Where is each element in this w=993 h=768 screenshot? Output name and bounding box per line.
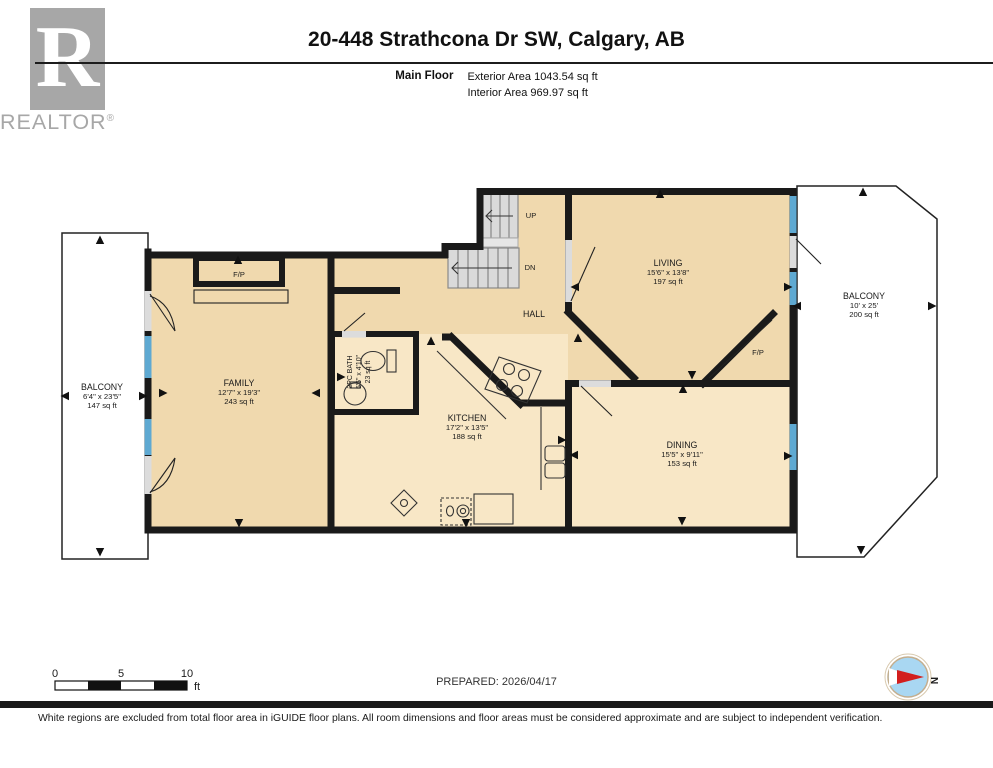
svg-text:15'6" x 13'8": 15'6" x 13'8" (647, 268, 689, 277)
prepared-date: PREPARED: 2026/04/17 (0, 676, 993, 688)
window (790, 196, 797, 233)
compass-icon: N (872, 648, 956, 704)
svg-text:153 sq ft: 153 sq ft (667, 459, 697, 468)
compass-north-label: N (928, 677, 939, 684)
living-fireplace-label: F/P (752, 348, 764, 357)
svg-text:10' x 25': 10' x 25' (850, 301, 879, 310)
footer-divider-bar (0, 701, 993, 708)
kitchen-label: KITCHEN (448, 413, 487, 423)
stair-landing (482, 238, 518, 247)
svg-text:17'2" x 13'5": 17'2" x 13'5" (446, 423, 488, 432)
disclaimer-text: White regions are excluded from total fl… (38, 713, 979, 724)
window (145, 336, 152, 378)
balcony-right-label: BALCONY (843, 291, 885, 301)
svg-text:147 sq ft: 147 sq ft (87, 401, 117, 410)
page-title: 20-448 Strathcona Dr SW, Calgary, AB (0, 28, 993, 52)
svg-text:197 sq ft: 197 sq ft (653, 277, 683, 286)
dining-label: DINING (667, 440, 698, 450)
brand-word: REALTOR (0, 110, 107, 134)
balcony-left-label: BALCONY (81, 382, 123, 392)
floor-areas: Exterior Area 1043.54 sq ft Interior Are… (467, 69, 597, 101)
svg-text:5'5" x 4'10": 5'5" x 4'10" (356, 354, 363, 389)
stairs-down (448, 248, 519, 288)
window (145, 419, 152, 455)
svg-text:12'7" x 19'3": 12'7" x 19'3" (218, 388, 260, 397)
brand-registered-mark: ® (107, 113, 115, 124)
svg-text:15'5" x 9'11": 15'5" x 9'11" (661, 450, 703, 459)
family-fireplace-label: F/P (233, 270, 245, 279)
up-label: UP (526, 211, 536, 220)
living-label: LIVING (654, 258, 683, 268)
hall-label: HALL (523, 309, 545, 319)
floor-plan-page: R REALTOR® 20-448 Strathcona Dr SW, Calg… (0, 0, 993, 768)
stairs-up (482, 194, 518, 238)
exterior-area: Exterior Area 1043.54 sq ft (467, 69, 597, 85)
realtor-brand-text: REALTOR® (0, 110, 150, 135)
down-label: DN (525, 263, 536, 272)
bath-label: 2PC BATH (347, 355, 354, 388)
family-label: FAMILY (224, 378, 255, 388)
balcony-right-region (797, 186, 937, 557)
svg-text:188 sq ft: 188 sq ft (452, 432, 482, 441)
interior-area: Interior Area 969.97 sq ft (467, 85, 597, 101)
svg-text:6'4" x 23'5": 6'4" x 23'5" (83, 392, 121, 401)
header-divider (35, 62, 993, 64)
floor-label: Main Floor (395, 69, 453, 101)
window (790, 424, 797, 470)
window (790, 272, 797, 305)
svg-text:243 sq ft: 243 sq ft (224, 397, 254, 406)
svg-text:23 sq ft: 23 sq ft (365, 361, 372, 384)
svg-text:200 sq ft: 200 sq ft (849, 310, 879, 319)
floor-summary: Main Floor Exterior Area 1043.54 sq ft I… (0, 69, 993, 101)
